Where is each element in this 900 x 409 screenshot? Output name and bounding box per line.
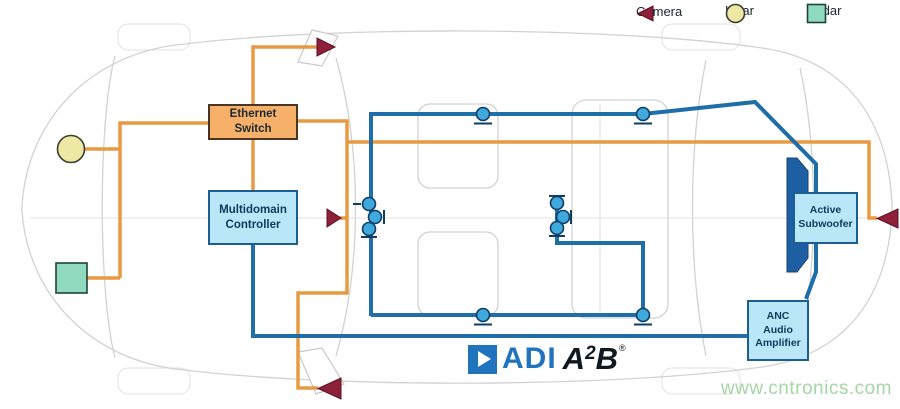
a2b-node	[369, 211, 382, 224]
watermark-text: www.cntronics.com	[721, 378, 892, 400]
hood-line	[102, 56, 115, 358]
anc-amplifier-label: Audio	[763, 324, 793, 338]
a2b-node	[551, 222, 564, 235]
anc-amplifier-label: Amplifier	[755, 337, 801, 351]
wire-bus-upper-loop	[371, 102, 816, 316]
a2b-node	[551, 197, 564, 210]
a2b-node	[637, 309, 650, 322]
lidar-icon	[725, 3, 746, 24]
legend-item-camera: Camera	[636, 4, 682, 19]
a2b-node	[363, 198, 376, 211]
active-subwoofer-box: Active Subwoofer	[793, 192, 858, 244]
adi-logo-mark	[468, 345, 497, 374]
car-network-diagram: Ethernet Switch Multidomain Controller A…	[0, 0, 900, 409]
active-subwoofer-label: Subwoofer	[798, 218, 852, 232]
multidomain-controller-box: Multidomain Controller	[208, 190, 298, 245]
legend-item-radar: Radar	[806, 3, 841, 18]
anc-amplifier-label: ANC	[767, 310, 790, 324]
ethernet-switch-label: Ethernet	[230, 107, 277, 122]
a2b-logo-text: A2B	[563, 341, 618, 377]
a2b-node-ticks	[353, 124, 652, 325]
adi-a2b-logo: ADI A2B ®	[468, 341, 626, 377]
a2b-nodes	[363, 108, 650, 322]
lidar-sensor-icon	[58, 136, 85, 163]
a2b-node	[477, 108, 490, 121]
wheel-front-bottom	[118, 368, 190, 394]
wheel-front-top	[118, 24, 190, 50]
a2b-node	[477, 309, 490, 322]
ethernet-switch-box: Ethernet Switch	[208, 104, 298, 140]
wire-bus-lower-loop	[371, 203, 643, 315]
radar-icon	[806, 3, 827, 24]
active-subwoofer-label: Active	[810, 204, 842, 218]
registered-mark: ®	[619, 343, 626, 353]
radar-sensor-icon	[56, 263, 87, 293]
rear-bench-seat	[572, 100, 668, 318]
a2b-node	[363, 223, 376, 236]
adi-logo-text: ADI	[502, 342, 557, 376]
legend-item-lidar: Lidar	[725, 3, 754, 18]
anc-amplifier-box: ANC Audio Amplifier	[747, 300, 809, 361]
camera-icon	[636, 4, 656, 23]
adi-play-icon	[478, 351, 491, 367]
wire-controller-to-anc	[253, 244, 748, 336]
front-seat-bottom	[418, 232, 498, 316]
camera-icon-center	[327, 209, 341, 227]
wire-left-trunk	[120, 123, 208, 278]
a2b-node	[637, 108, 650, 121]
multidomain-controller-label: Controller	[226, 218, 281, 233]
multidomain-controller-label: Multidomain	[219, 203, 287, 218]
wheel-rear-top	[662, 24, 740, 50]
rear-window-line	[693, 60, 707, 356]
ethernet-switch-label: Switch	[234, 122, 271, 137]
camera-icon-right	[877, 209, 898, 228]
